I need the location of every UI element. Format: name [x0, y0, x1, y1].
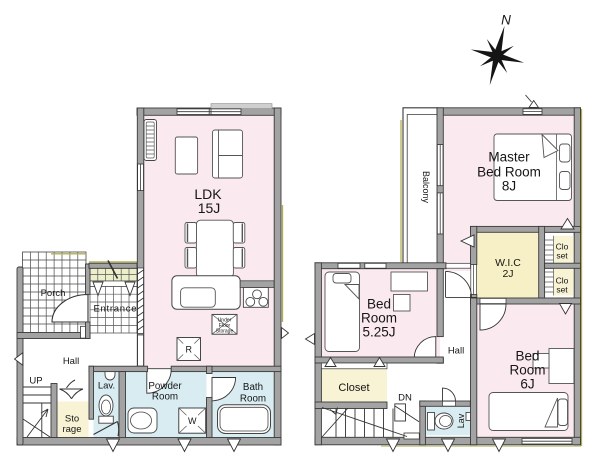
svg-text:set: set: [556, 285, 568, 295]
svg-text:8J: 8J: [502, 179, 516, 194]
svg-text:5.25J: 5.25J: [362, 325, 395, 340]
svg-text:Bath: Bath: [243, 382, 263, 393]
svg-text:N: N: [501, 13, 511, 28]
svg-text:Porch: Porch: [41, 288, 66, 299]
svg-text:Hall: Hall: [448, 346, 464, 357]
svg-text:6J: 6J: [520, 377, 534, 392]
svg-text:Bed: Bed: [515, 349, 539, 364]
svg-text:Bed: Bed: [367, 297, 391, 312]
svg-text:Lav: Lav: [456, 413, 466, 428]
svg-text:Room: Room: [361, 311, 397, 326]
svg-text:Hall: Hall: [63, 356, 79, 367]
svg-text:Sto: Sto: [65, 414, 79, 425]
svg-text:Lav.: Lav.: [98, 381, 115, 392]
svg-text:2J: 2J: [502, 268, 513, 280]
svg-text:W: W: [188, 416, 197, 426]
svg-text:Room: Room: [509, 363, 545, 378]
svg-text:UP: UP: [29, 376, 42, 387]
svg-text:rage: rage: [62, 424, 81, 435]
svg-text:DN: DN: [398, 393, 412, 404]
svg-text:set: set: [556, 251, 568, 261]
svg-text:Storage: Storage: [216, 329, 234, 335]
svg-text:R: R: [185, 345, 192, 355]
svg-text:Room: Room: [240, 394, 266, 405]
svg-text:Closet: Closet: [338, 382, 369, 394]
svg-text:Balcony: Balcony: [421, 171, 431, 204]
svg-text:Bed Room: Bed Room: [477, 165, 541, 180]
svg-text:15J: 15J: [198, 200, 221, 216]
svg-text:Powder: Powder: [148, 381, 182, 392]
svg-text:Master: Master: [488, 150, 530, 165]
svg-text:Entrance: Entrance: [94, 304, 137, 315]
svg-text:Room: Room: [152, 392, 178, 403]
